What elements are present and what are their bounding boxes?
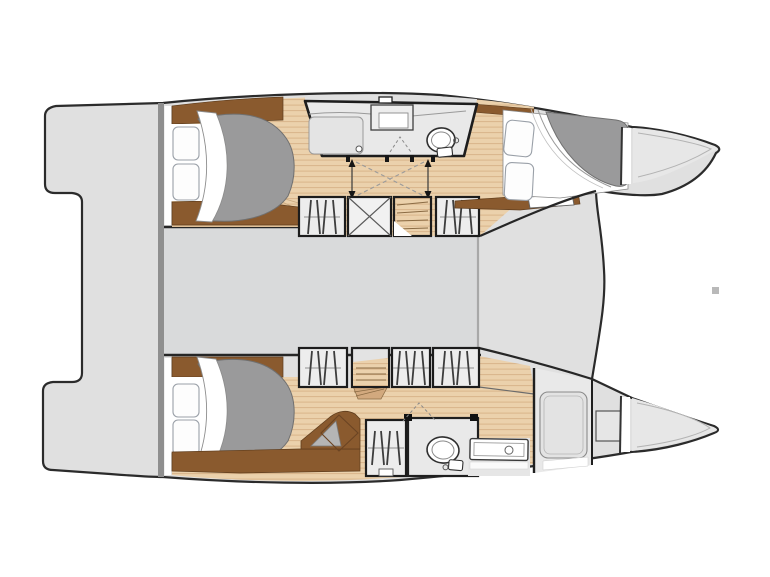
shower-pan <box>540 392 587 458</box>
shower-room-port <box>305 97 477 162</box>
step-treads <box>353 358 388 386</box>
aft-cabin-port <box>171 97 299 225</box>
bed-pillow <box>173 420 199 455</box>
floor-plan-page <box>0 0 770 577</box>
starboard-hull <box>171 348 717 481</box>
forward-storage-hatch <box>596 411 623 441</box>
stern-gap-port <box>165 106 172 225</box>
bed-pillow <box>173 127 199 160</box>
bow-starboard <box>620 396 717 453</box>
vanity-sink-counter <box>468 438 530 476</box>
shower-pan <box>309 117 363 154</box>
hanging-locker-cabin <box>366 420 406 476</box>
bed-pillow <box>173 384 199 417</box>
bow-bulkhead <box>620 396 621 453</box>
locker-kick-notch <box>379 469 393 476</box>
transom-divider <box>158 103 164 477</box>
locker-band-port <box>299 197 479 236</box>
locker-band-starboard <box>299 348 479 387</box>
watermark-dot <box>712 287 719 294</box>
bow-bulkhead <box>621 127 622 185</box>
shower-stall <box>534 368 592 473</box>
counter-step <box>470 462 528 469</box>
saloon-area <box>164 228 477 354</box>
bed-pillow <box>503 120 535 158</box>
bed-pillow <box>504 162 534 200</box>
foot-cabinet <box>172 449 360 473</box>
stern-gap-starboard <box>165 358 172 475</box>
catamaran-floorplan <box>0 0 770 577</box>
port-hull <box>171 94 718 236</box>
sink-basin <box>505 446 513 454</box>
shower-drain <box>356 146 362 152</box>
vanity-sink <box>379 113 408 128</box>
deck-hatch-icon <box>379 97 392 103</box>
door-jamb-tick <box>470 414 478 421</box>
bed-pillow <box>173 164 199 200</box>
